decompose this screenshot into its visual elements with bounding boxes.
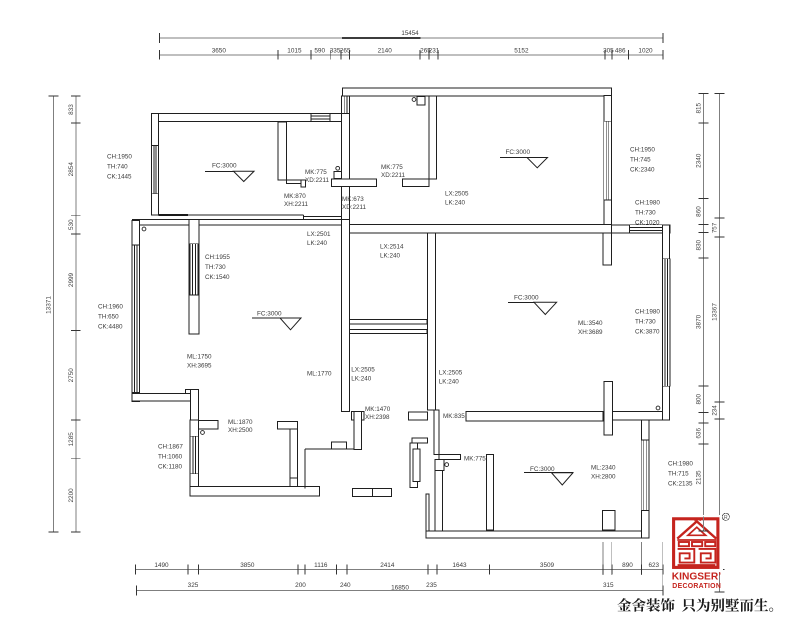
svg-text:MK:775: MK:775 (305, 169, 327, 176)
svg-text:2750: 2750 (68, 368, 75, 383)
svg-text:XH:3695: XH:3695 (187, 363, 212, 370)
svg-text:TH:730: TH:730 (205, 264, 226, 271)
svg-text:1490: 1490 (154, 562, 169, 569)
svg-text:LX:2505: LX:2505 (351, 367, 375, 374)
svg-text:800: 800 (695, 393, 702, 404)
svg-text:5152: 5152 (514, 47, 529, 54)
svg-text:CH:1867: CH:1867 (158, 444, 183, 451)
svg-text:2340: 2340 (695, 153, 702, 168)
svg-text:3850: 3850 (240, 562, 255, 569)
svg-text:TH:740: TH:740 (107, 164, 128, 171)
svg-text:830: 830 (695, 239, 702, 250)
svg-text:TH:730: TH:730 (635, 210, 656, 217)
svg-text:MK:775: MK:775 (464, 456, 486, 463)
svg-text:KINGSER’: KINGSER’ (672, 572, 721, 583)
svg-text:XH:3689: XH:3689 (578, 329, 603, 336)
svg-text:FC:3000: FC:3000 (257, 311, 282, 318)
svg-text:MK:1470: MK:1470 (365, 406, 391, 413)
svg-text:FC:3000: FC:3000 (514, 295, 539, 302)
svg-text:CH:1950: CH:1950 (630, 147, 655, 154)
svg-text:CH:1980: CH:1980 (635, 309, 660, 316)
svg-text:2140: 2140 (378, 47, 393, 54)
svg-text:757: 757 (711, 222, 718, 233)
svg-text:LX:2505: LX:2505 (439, 370, 463, 377)
svg-text:FC:3000: FC:3000 (212, 163, 237, 170)
svg-text:3870: 3870 (695, 314, 702, 329)
svg-text:1643: 1643 (452, 562, 467, 569)
svg-text:2200: 2200 (68, 488, 75, 503)
svg-text:265: 265 (340, 47, 351, 54)
svg-text:MK:775: MK:775 (381, 164, 403, 171)
svg-text:CK:1020: CK:1020 (635, 220, 660, 227)
svg-text:ML:2340: ML:2340 (591, 465, 616, 472)
svg-text:590: 590 (314, 47, 325, 54)
svg-text:TH:650: TH:650 (98, 314, 119, 321)
svg-text:16850: 16850 (391, 585, 409, 592)
svg-text:LX:2505: LX:2505 (445, 191, 469, 198)
svg-text:ML:1770: ML:1770 (307, 371, 332, 378)
svg-text:CK:3870: CK:3870 (635, 329, 660, 336)
svg-text:XH:2500: XH:2500 (228, 427, 253, 434)
svg-text:LK:240: LK:240 (445, 200, 465, 207)
svg-text:MK:870: MK:870 (284, 193, 306, 200)
svg-text:2854: 2854 (68, 162, 75, 177)
svg-text:815: 815 (695, 102, 702, 113)
svg-text:636: 636 (695, 428, 702, 439)
svg-text:TH:715: TH:715 (668, 471, 689, 478)
svg-text:CH:1980: CH:1980 (635, 200, 660, 207)
svg-text:623: 623 (648, 562, 659, 569)
svg-text:XH:2211: XH:2211 (284, 201, 309, 208)
svg-text:ML:3540: ML:3540 (578, 320, 603, 327)
svg-text:CK:1445: CK:1445 (107, 174, 132, 181)
svg-text:305: 305 (603, 47, 614, 54)
svg-text:LK:240: LK:240 (380, 253, 400, 260)
svg-text:15454: 15454 (401, 30, 419, 37)
svg-text:MK:673: MK:673 (342, 196, 364, 203)
svg-text:TH:745: TH:745 (630, 157, 651, 164)
svg-text:1285: 1285 (68, 432, 75, 447)
svg-text:LK:240: LK:240 (307, 240, 327, 247)
svg-text:CH:1960: CH:1960 (98, 304, 123, 311)
svg-text:MK:835: MK:835 (443, 413, 465, 420)
svg-text:XD:2211: XD:2211 (305, 177, 330, 184)
svg-text:231: 231 (429, 47, 440, 54)
svg-text:2999: 2999 (68, 272, 75, 287)
svg-text:240: 240 (340, 582, 351, 589)
svg-text:CK:2135: CK:2135 (668, 481, 693, 488)
svg-text:2414: 2414 (380, 562, 395, 569)
svg-text:DECORATION: DECORATION (672, 583, 721, 590)
svg-text:200: 200 (295, 582, 306, 589)
svg-text:XH:2398: XH:2398 (365, 414, 390, 421)
svg-text:CH:1980: CH:1980 (668, 461, 693, 468)
svg-text:LX:2514: LX:2514 (380, 244, 404, 251)
svg-text:XH:2800: XH:2800 (591, 474, 616, 481)
svg-text:CK:2340: CK:2340 (630, 167, 655, 174)
svg-text:13371: 13371 (46, 296, 53, 314)
svg-text:FC:3000: FC:3000 (530, 466, 555, 473)
svg-text:833: 833 (68, 104, 75, 115)
svg-text:1015: 1015 (287, 47, 302, 54)
svg-text:3509: 3509 (540, 562, 555, 569)
svg-text:860: 860 (695, 206, 702, 217)
svg-text:R: R (724, 515, 728, 521)
svg-text:ML:1750: ML:1750 (187, 354, 212, 361)
svg-text:CK:1540: CK:1540 (205, 274, 230, 281)
svg-text:FC:3000: FC:3000 (506, 149, 531, 156)
svg-text:LX:2501: LX:2501 (307, 231, 331, 238)
svg-text:315: 315 (603, 582, 614, 589)
svg-text:ML:1870: ML:1870 (228, 419, 253, 426)
svg-text:TH:730: TH:730 (635, 319, 656, 326)
svg-text:CK:4480: CK:4480 (98, 324, 123, 331)
svg-text:486: 486 (615, 47, 626, 54)
svg-text:234: 234 (711, 405, 718, 416)
svg-text:1116: 1116 (314, 562, 328, 569)
svg-text:2135: 2135 (695, 470, 702, 485)
svg-text:CK:1180: CK:1180 (158, 464, 183, 471)
svg-text:1020: 1020 (638, 47, 653, 54)
svg-text:LK:240: LK:240 (439, 379, 459, 386)
svg-text:XD:2211: XD:2211 (381, 172, 406, 179)
svg-text:CH:1955: CH:1955 (205, 254, 230, 261)
svg-text:TH:1060: TH:1060 (158, 454, 183, 461)
svg-text:XD:2211: XD:2211 (342, 204, 367, 211)
svg-text:LK:240: LK:240 (351, 376, 371, 383)
svg-text:530: 530 (68, 219, 75, 230)
svg-text:CH:1950: CH:1950 (107, 154, 132, 161)
svg-text:325: 325 (188, 582, 199, 589)
svg-text:3650: 3650 (212, 47, 227, 54)
svg-text:13367: 13367 (711, 303, 718, 321)
svg-text:235: 235 (426, 582, 437, 589)
svg-text:890: 890 (622, 562, 633, 569)
